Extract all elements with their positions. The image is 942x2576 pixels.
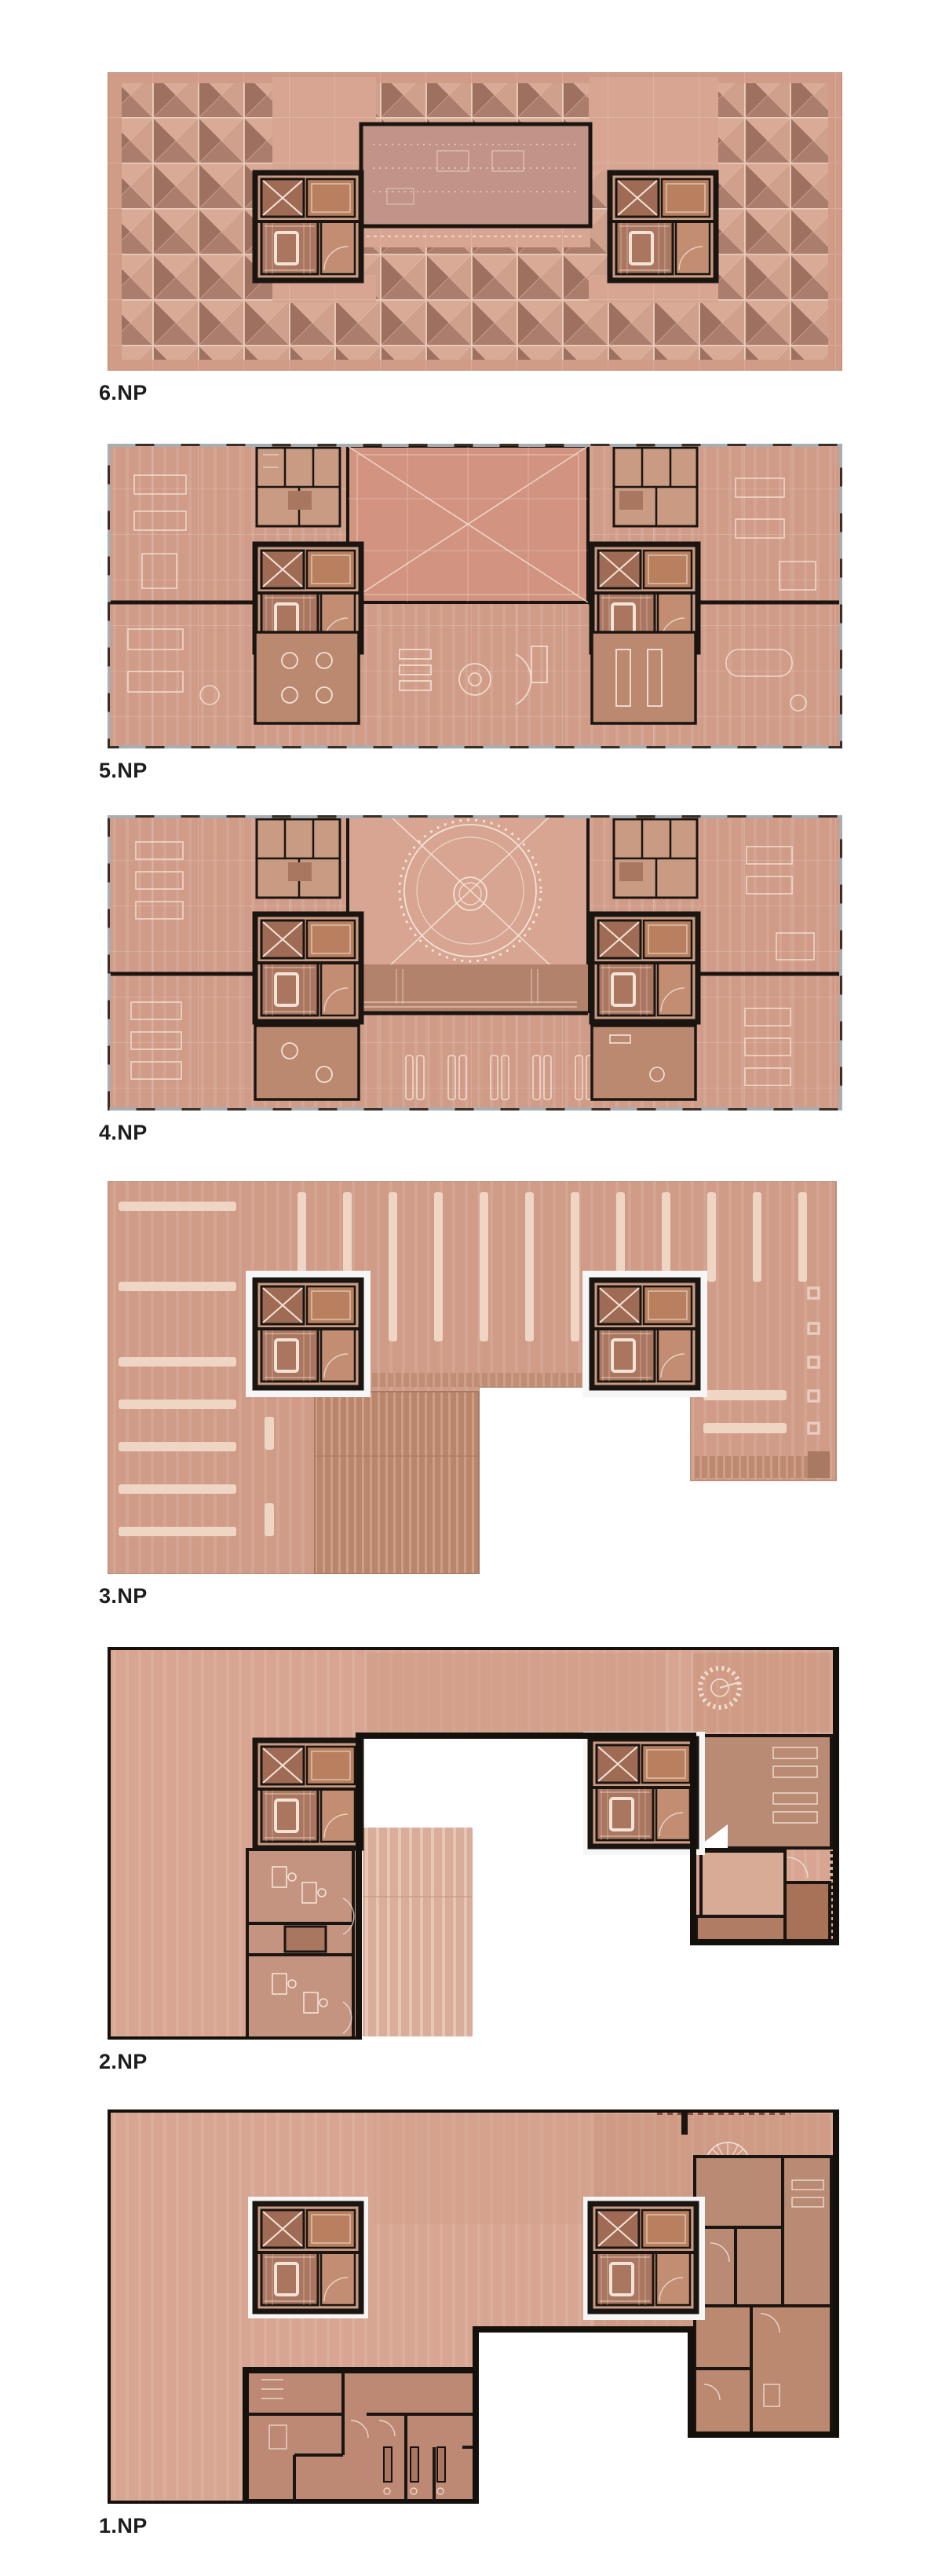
stair-core-right — [592, 914, 698, 1022]
stair-core-right — [586, 2200, 702, 2317]
service-cluster-left — [257, 819, 340, 898]
step-room-light — [701, 1851, 785, 1916]
stair-core-left — [250, 1275, 367, 1393]
floor-plan-4np-drawing — [108, 815, 842, 1111]
right-wing-dark-cell — [808, 1451, 830, 1478]
band-shading — [367, 1653, 665, 1732]
band-shading-mid — [374, 2114, 594, 2224]
meeting-room-right — [592, 632, 696, 723]
floor-label-3np: 3.NP — [99, 1584, 842, 1608]
floor-plan-2np: 2.NP — [108, 1647, 842, 2074]
floor-label-2np: 2.NP — [99, 2050, 842, 2074]
meeting-room-left — [255, 632, 359, 723]
ramp — [363, 1828, 473, 2036]
floor-plan-4np: 4.NP — [108, 815, 842, 1145]
step-room-dark — [785, 1883, 830, 1942]
floor-plan-1np-drawing — [108, 2109, 842, 2504]
stair-core-left — [255, 914, 361, 1022]
sanitary-block — [246, 2370, 476, 2502]
stair-core-right — [610, 173, 716, 280]
service-cluster-right — [614, 819, 697, 898]
meeting-room-right — [592, 1026, 696, 1100]
stair-core-right — [586, 1735, 702, 1852]
floor-plan-3np-drawing — [108, 1181, 842, 1574]
stair-core-right — [586, 1275, 703, 1393]
floor-label-6np: 6.NP — [99, 381, 842, 405]
floor-plan-2np-drawing — [108, 1647, 842, 2040]
service-cluster-left — [257, 448, 340, 526]
stair-core-left — [255, 173, 361, 280]
penthouse-roof-volume — [361, 124, 590, 226]
step-room-low — [696, 1916, 785, 1942]
ramp — [315, 1392, 479, 1574]
floor-plan-6np-drawing — [108, 72, 842, 371]
right-wing-rooms — [695, 2157, 833, 2435]
floor-label-5np: 5.NP — [99, 759, 842, 783]
office-rooms-left — [247, 1850, 354, 2038]
band-shading-right — [693, 1653, 831, 1732]
floor-label-1np: 1.NP — [99, 2514, 842, 2538]
central-atrium — [348, 446, 588, 602]
floor-plan-6np: 6.NP — [108, 72, 842, 405]
floor-plan-3np: 3.NP — [108, 1181, 842, 1608]
service-cluster-right — [614, 448, 697, 526]
stage-band — [348, 964, 588, 1013]
auditorium-block — [348, 815, 588, 1013]
floor-plan-1np: 1.NP — [108, 2109, 842, 2538]
meeting-room-left — [255, 1026, 359, 1100]
right-wing-rooms — [696, 1736, 833, 1942]
stair-core-left — [251, 2200, 365, 2315]
floor-label-4np: 4.NP — [99, 1121, 842, 1145]
floor-plan-5np-drawing — [108, 444, 842, 748]
floor-plan-5np: 5.NP — [108, 444, 842, 783]
stair-core-left — [255, 1740, 361, 1848]
